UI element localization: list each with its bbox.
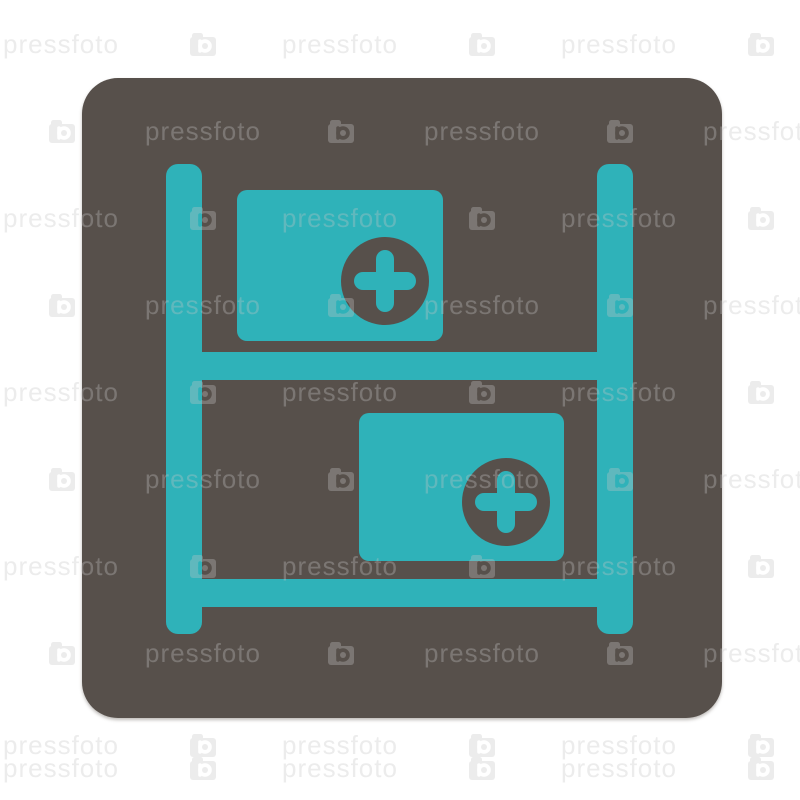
pressfoto-camera-icon [747, 757, 775, 781]
pressfoto-camera-icon [747, 555, 775, 579]
plus-icon [376, 250, 394, 312]
pressfoto-camera-icon [48, 642, 76, 666]
watermark-text: pressfoto [561, 28, 677, 60]
pressfoto-camera-icon [747, 33, 775, 57]
watermark-text: pressfoto [282, 752, 398, 784]
cross-circle-top-icon [341, 237, 429, 325]
pressfoto-camera-icon [48, 120, 76, 144]
pressfoto-camera-icon [468, 734, 496, 758]
shelf-bottom-bar-icon [166, 579, 632, 607]
medical-box-top-icon [237, 190, 443, 341]
shelf-left-post-icon [166, 164, 202, 634]
shelf-middle-bar-icon [166, 352, 632, 380]
watermark-text: pressfoto [561, 729, 677, 761]
pressfoto-camera-icon [48, 468, 76, 492]
pressfoto-camera-icon [189, 33, 217, 57]
plus-icon [497, 471, 515, 533]
watermark-text: pressfoto [561, 752, 677, 784]
medical-box-bottom-icon [359, 413, 564, 561]
pressfoto-camera-icon [747, 734, 775, 758]
pressfoto-camera-icon [468, 33, 496, 57]
pressfoto-camera-icon [468, 757, 496, 781]
watermark-text: pressfoto [3, 28, 119, 60]
pressfoto-camera-icon [189, 757, 217, 781]
pressfoto-camera-icon [747, 207, 775, 231]
pressfoto-camera-icon [189, 734, 217, 758]
watermark-text: pressfoto [3, 752, 119, 784]
watermark-text: pressfoto [282, 28, 398, 60]
shelf-right-post-icon [597, 164, 633, 634]
watermark-text: pressfoto [282, 729, 398, 761]
watermark-text: pressfoto [3, 729, 119, 761]
pressfoto-camera-icon [747, 381, 775, 405]
pressfoto-camera-icon [48, 294, 76, 318]
cross-circle-bottom-icon [462, 458, 550, 546]
stock-image-canvas: pressfotopressfotopressfotopressfotopres… [0, 0, 800, 800]
